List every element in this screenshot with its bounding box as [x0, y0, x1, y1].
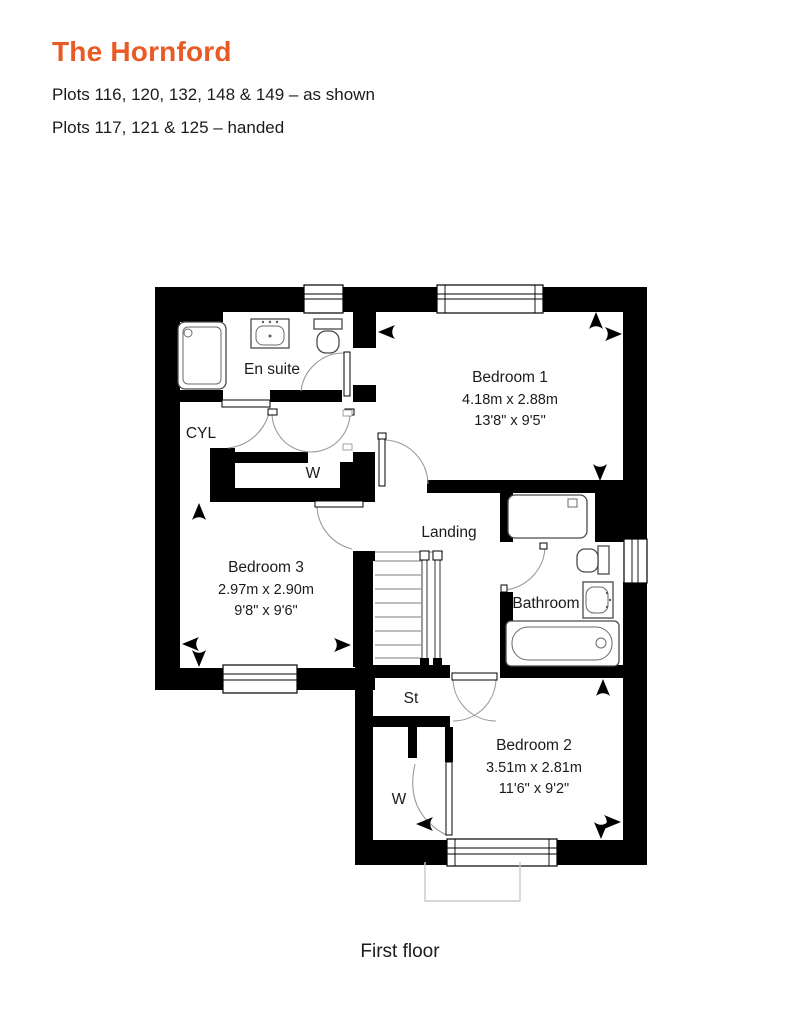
door-bedroom3 [315, 501, 363, 549]
walls [155, 287, 647, 865]
wardrobe2-label: W [392, 791, 407, 808]
landing-label: Landing [421, 524, 476, 541]
bedroom3-label: Bedroom 3 [228, 559, 304, 576]
store-label: St [404, 690, 419, 707]
floor-caption: First floor [0, 941, 800, 963]
bathroom-shower-tray-icon [508, 495, 587, 538]
window-bedroom2 [447, 839, 557, 866]
door-bedroom1 [378, 433, 428, 486]
wardrobe1-label: W [306, 465, 321, 482]
bedroom2-dim-imperial: 11'6" x 9'2" [499, 781, 569, 797]
stairs-icon [375, 551, 443, 667]
cyl-label: CYL [186, 425, 217, 442]
floor-plan: En suite CYL W Bedroom 1 4.18m x 2.88m 1… [0, 0, 800, 1036]
porch-outline [425, 862, 520, 901]
bedroom1-dim-metric: 4.18m x 2.88m [462, 392, 558, 408]
bath-icon [506, 621, 619, 666]
window-bedroom3 [223, 665, 297, 693]
bedroom1-dim-imperial: 13'8" x 9'5" [474, 413, 545, 429]
bathroom-label: Bathroom [512, 595, 579, 612]
window-ensuite [304, 285, 343, 313]
door-bathroom [501, 543, 547, 592]
door-cyl [222, 400, 270, 448]
ensuite-toilet-icon [314, 319, 342, 353]
landing-opening [343, 410, 352, 450]
bathroom-sink-icon [583, 582, 613, 618]
door-wardrobe1-double [268, 409, 354, 452]
door-store-and-bedroom2 [452, 673, 497, 721]
bathroom-toilet-icon [577, 546, 609, 574]
window-bedroom1 [437, 285, 543, 313]
bedroom3-dim-metric: 2.97m x 2.90m [218, 582, 314, 598]
window-bathroom [624, 539, 647, 583]
shower-icon [178, 322, 226, 389]
bedroom2-label: Bedroom 2 [496, 737, 572, 754]
door-ensuite [301, 352, 350, 396]
ensuite-label: En suite [244, 361, 300, 378]
bedroom3-dim-imperial: 9'8" x 9'6" [234, 603, 297, 619]
bedroom2-dim-metric: 3.51m x 2.81m [486, 760, 582, 776]
bedroom1-label: Bedroom 1 [472, 369, 548, 386]
ensuite-sink-icon [251, 319, 289, 348]
